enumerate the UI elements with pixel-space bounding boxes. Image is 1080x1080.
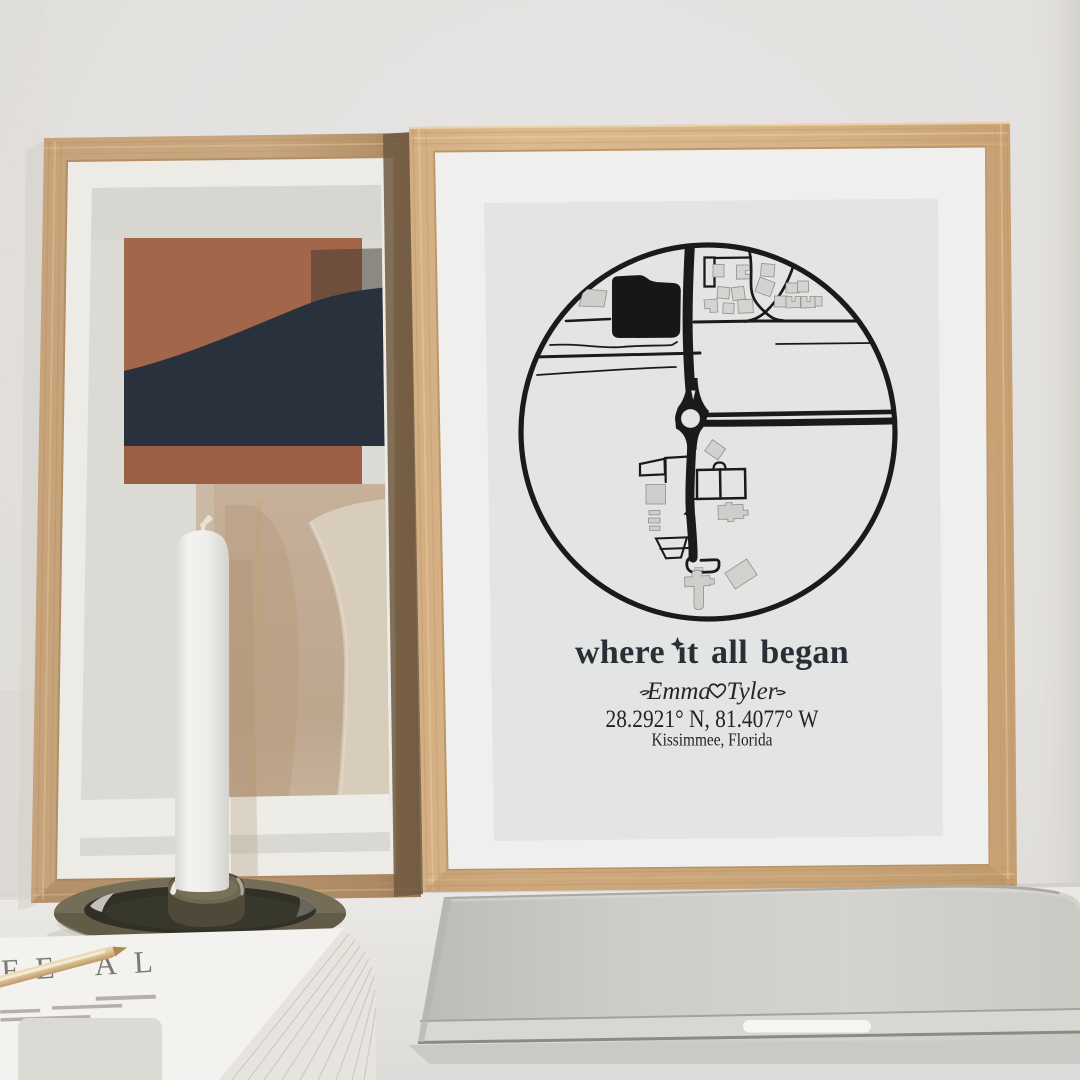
svg-text:Emma: Emma — [646, 678, 711, 705]
svg-text:Tyler: Tyler — [727, 678, 778, 705]
svg-text:Kissimmee, Florida: Kissimmee, Florida — [652, 730, 773, 750]
svg-text:where ıt all began: where ıt all began — [575, 634, 849, 671]
